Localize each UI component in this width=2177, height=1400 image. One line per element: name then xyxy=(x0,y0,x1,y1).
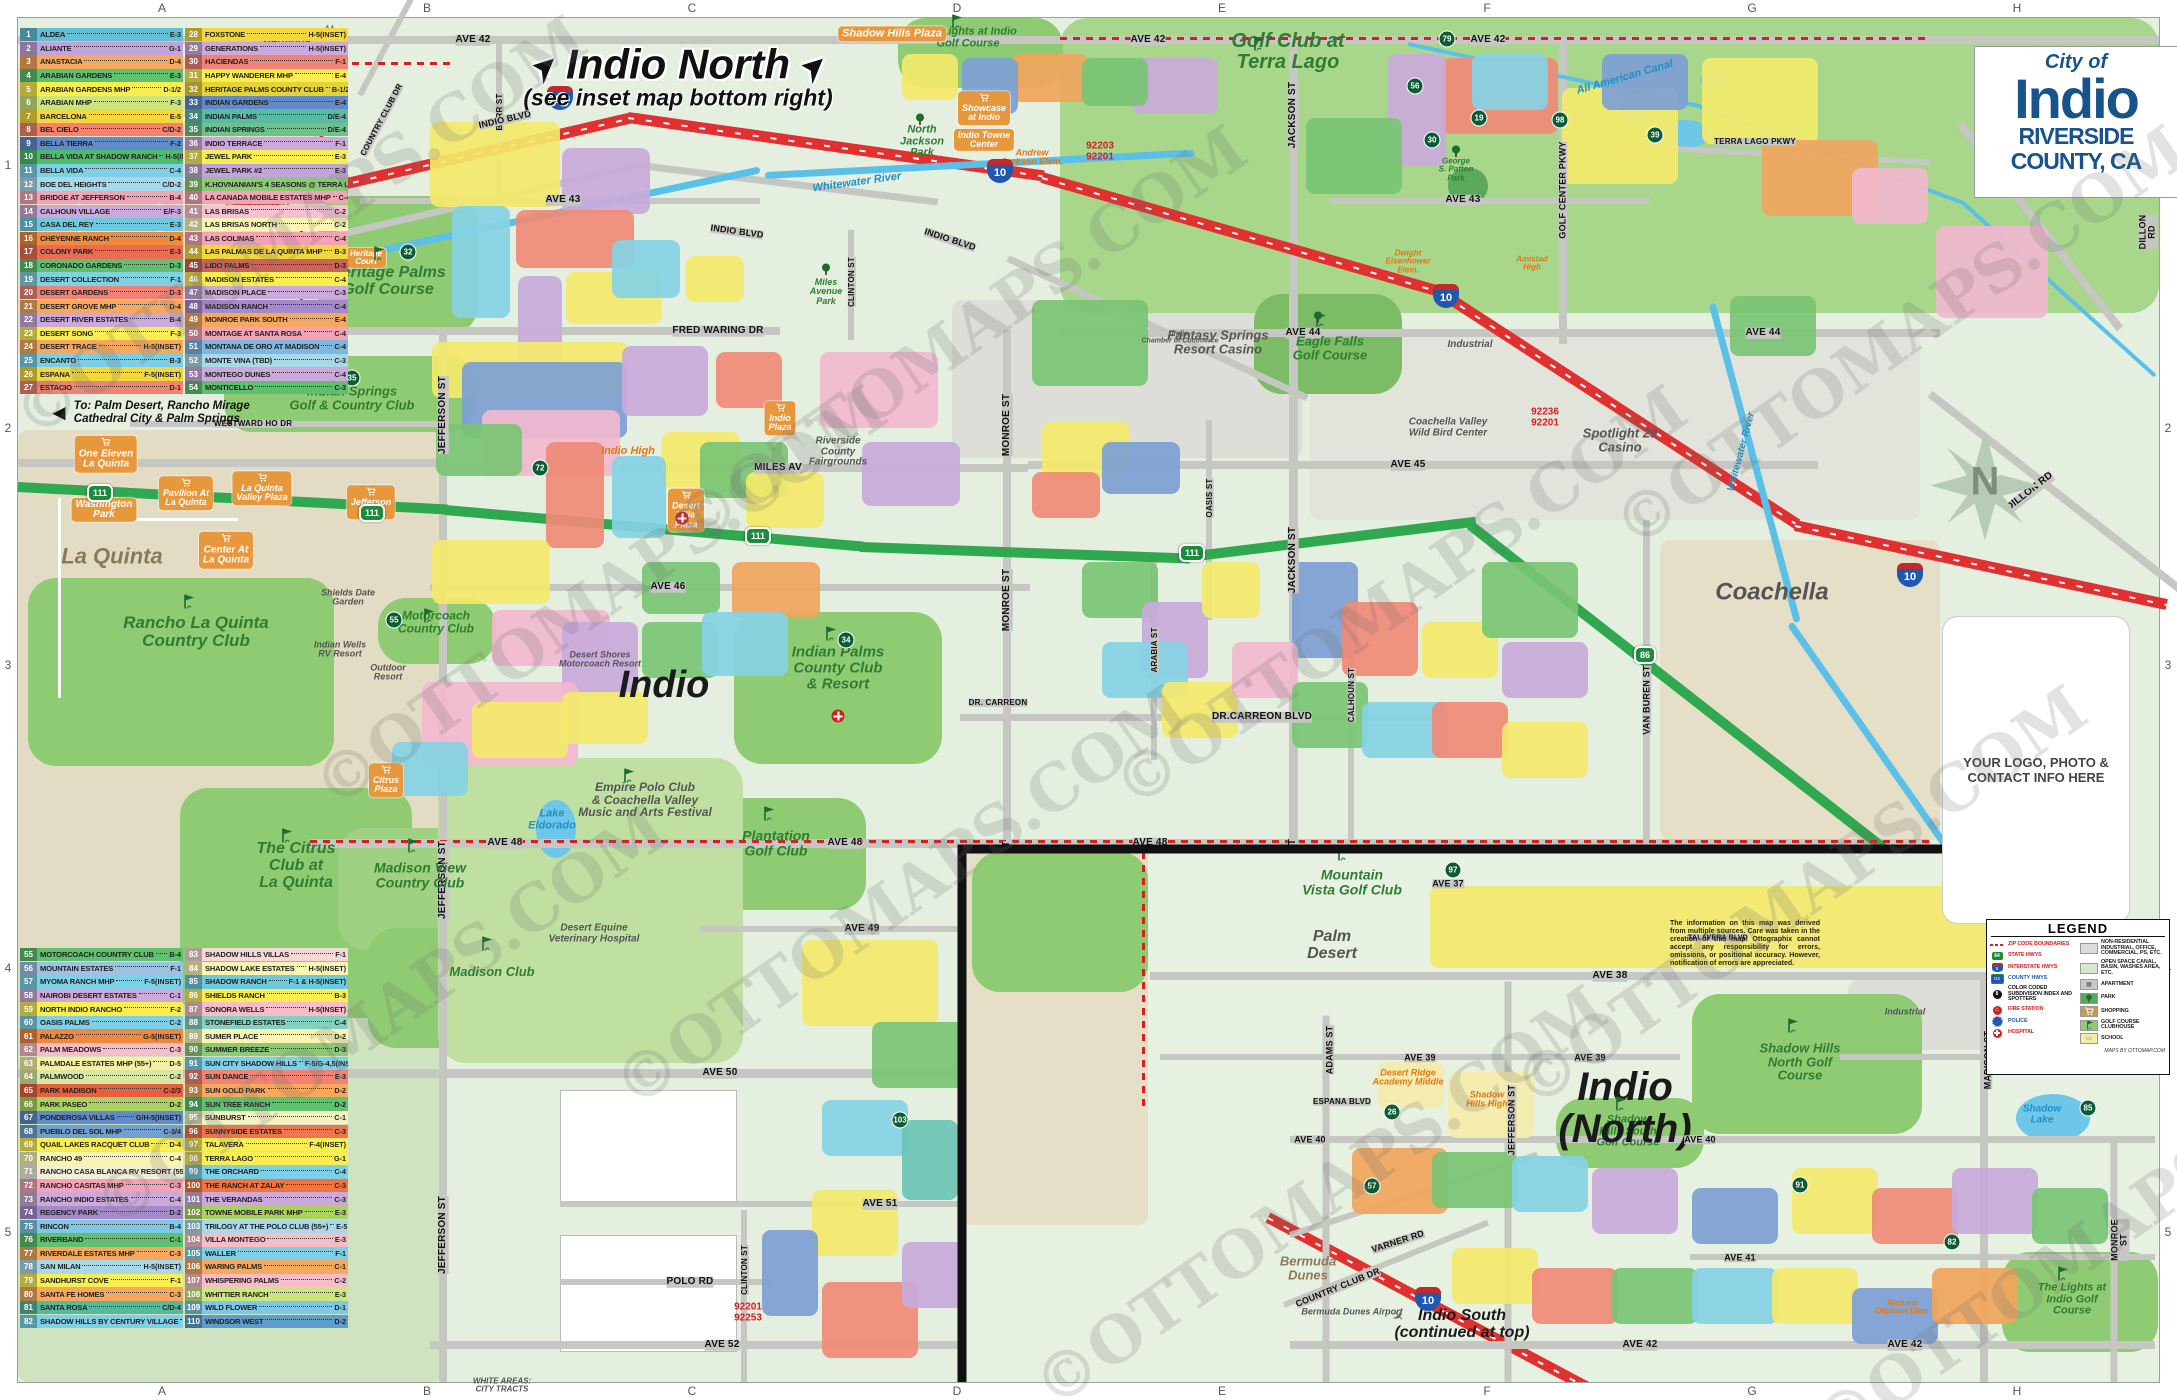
index-row-gridref: F-5(INSET) xyxy=(144,977,183,986)
index-row-gridref: E-3 xyxy=(170,247,183,256)
index-row-number: 12 xyxy=(20,177,37,190)
index-row: 21DESERT GROVE MHPD-4 xyxy=(20,300,183,313)
map-label: Shadow Hills High xyxy=(1466,1091,1508,1110)
index-row-gridref: B-4 xyxy=(169,950,183,959)
map-label: AVE 48 xyxy=(828,838,863,849)
subdivision-patch xyxy=(1502,722,1588,778)
index-row: 59NORTH INDIO RANCHOF-2 xyxy=(20,1002,183,1015)
index-row: 14CALHOUN VILLAGEE/F-3 xyxy=(20,205,183,218)
subdivision-patch xyxy=(1202,562,1260,618)
subdivision-patch xyxy=(1082,58,1148,106)
map-label: JACKSON ST xyxy=(1288,82,1299,148)
index-row-number: 15 xyxy=(20,218,37,231)
index-row-leader xyxy=(269,980,287,981)
road-band xyxy=(2111,1140,2118,1396)
map-label: JEFFERSON ST xyxy=(1507,1085,1516,1155)
subdivision-spotter-badge: 82 xyxy=(1944,1234,1961,1251)
index-row-name: K.HOVNANIAN'S 4 SEASONS @ TERRA LAGO (55… xyxy=(202,180,348,189)
index-row: 86SHIELDS RANCHB-3 xyxy=(185,989,348,1002)
state-hwy-shield: 86 xyxy=(1634,646,1656,664)
index-row-gridref: H-5(INSET) xyxy=(165,152,183,161)
legend-item-swatch xyxy=(2080,1006,2098,1017)
index-row-number: 85 xyxy=(185,975,202,988)
map-label: POLO RD xyxy=(667,1277,714,1288)
map-label: DR.CARREON BLVD xyxy=(1212,712,1312,723)
index-row-gridref: C-2 xyxy=(169,1072,183,1081)
index-row-leader xyxy=(276,277,333,278)
shield-number: 10 xyxy=(1433,290,1459,308)
road-band xyxy=(1290,1341,2155,1349)
index-row: 5ARABIAN GARDENS MHPD-1/2 xyxy=(20,82,183,95)
index-row-number: 28 xyxy=(185,28,202,41)
hospital-icon xyxy=(832,710,845,723)
index-row-number: 23 xyxy=(20,327,37,340)
index-row-number: 60 xyxy=(20,1016,37,1029)
index-row-gridref: C-3 xyxy=(169,1045,183,1054)
legend-item: 5INTERSTATE HWYS xyxy=(1989,963,2076,972)
index-row: 92SUN DANCEE-3 xyxy=(185,1070,348,1083)
golf-flag-icon xyxy=(949,14,963,35)
minor-street xyxy=(560,1090,737,1207)
index-row-name: RANCHO INDIO ESTATES xyxy=(37,1195,129,1204)
index-row: 78SAN MILANH-5(INSET) xyxy=(20,1260,183,1273)
zip-boundary-dash xyxy=(1142,852,1145,1108)
index-row-name: STONEFIELD ESTATES xyxy=(202,1018,285,1027)
index-row: 63PALMDALE ESTATES MHP (55+)D-5 xyxy=(20,1057,183,1070)
map-label: AVE 49 xyxy=(845,924,880,935)
legend-item-icon: 8 xyxy=(1989,990,2005,999)
index-row-name: BELLA VIDA xyxy=(37,166,83,175)
index-row: 3ANASTACIAD-4 xyxy=(20,55,183,68)
index-row: 103TRILOGY AT THE POLO CLUB (55+)E-5 xyxy=(185,1220,348,1233)
interstate-10-shield: 10 xyxy=(987,159,1013,183)
map-label: ADAMS ST xyxy=(1325,1026,1334,1075)
index-row: 82SHADOW HILLS BY CENTURY VILLAGEH-5(INS… xyxy=(20,1315,183,1328)
legend-item: ZIP CODE BOUNDARIES xyxy=(1989,940,2076,949)
index-row-name: SHADOW HILLS BY CENTURY VILLAGE xyxy=(37,1317,178,1326)
index-row-leader xyxy=(151,1143,167,1144)
index-row-leader xyxy=(267,993,333,994)
index-row-number: 39 xyxy=(185,177,202,190)
index-row-leader xyxy=(267,128,326,129)
index-row-gridref: C-3/4 xyxy=(163,1127,183,1136)
index-row: 69QUAIL LAKES RACQUET CLUBD-4 xyxy=(20,1138,183,1151)
index-row-name: BELLA TIERRA xyxy=(37,139,93,148)
index-row-number: 70 xyxy=(20,1152,37,1165)
grid-letter: G xyxy=(1747,1384,1756,1398)
title-city-name: Indio xyxy=(1975,74,2177,124)
index-row-name: TOWNE MOBILE PARK MHP xyxy=(202,1208,303,1217)
index-row: 49MONROE PARK SOUTHE-4 xyxy=(185,313,348,326)
index-row-leader xyxy=(92,1021,168,1022)
index-row-leader xyxy=(84,60,167,61)
offmap-destinations-text: To: Palm Desert, Rancho Mirage Cathedral… xyxy=(74,400,250,425)
minor-street xyxy=(560,1235,737,1352)
index-row-name: ENCANTO xyxy=(37,356,76,365)
index-row-leader xyxy=(86,1075,168,1076)
subdivision-spotter-badge: 26 xyxy=(1384,1104,1401,1121)
grid-number: 3 xyxy=(2165,658,2172,672)
subdivision-spotter-badge: 103 xyxy=(892,1112,909,1129)
index-row: 13BRIDGE AT JEFFERSONB-4 xyxy=(20,191,183,204)
index-row: 72RANCHO CASITAS MHPC-3 xyxy=(20,1179,183,1192)
index-row-gridref: E-3 xyxy=(335,1208,348,1217)
index-row-leader xyxy=(85,1238,167,1239)
index-row-gridref: D-4 xyxy=(169,234,183,243)
index-row-gridref: H-5(INSET) xyxy=(308,1005,348,1014)
index-row-number: 80 xyxy=(20,1287,37,1300)
index-row: 10BELLA VIDA AT SHADOW RANCHH-5(INSET) xyxy=(20,150,183,163)
map-label: Desert Equine Veterinary Hospital xyxy=(549,924,640,945)
index-row-name: CORONADO GARDENS xyxy=(37,261,122,270)
index-row: 34INDIAN PALMSD/E-4 xyxy=(185,109,348,122)
map-label: Empire Polo Club & Coachella Valley Musi… xyxy=(578,781,712,819)
index-row-number: 20 xyxy=(20,286,37,299)
subdivision-patch xyxy=(1936,226,2048,318)
index-row-number: 32 xyxy=(185,82,202,95)
index-row-number: 46 xyxy=(185,272,202,285)
index-row-leader xyxy=(251,209,332,210)
index-row-number: 68 xyxy=(20,1125,37,1138)
index-row-leader xyxy=(272,372,332,373)
index-row-number: 30 xyxy=(185,55,202,68)
index-row-leader xyxy=(85,168,167,169)
index-row-gridref: D-3 xyxy=(334,261,348,270)
legend-item-swatch xyxy=(2080,993,2098,1004)
road-band xyxy=(1690,1254,2155,1260)
grid-number: 3 xyxy=(5,658,12,672)
index-row-leader xyxy=(95,141,168,142)
index-row-gridref: D-1/2 xyxy=(163,85,183,94)
map-label: Miles Avenue Park xyxy=(810,278,843,306)
index-row-leader xyxy=(116,980,142,981)
index-row-leader xyxy=(271,1048,332,1049)
golf-flag-icon xyxy=(621,768,635,789)
legend-item-label: COLOR CODED SUBDIVISION INDEX AND SPOTTE… xyxy=(2008,986,2076,1003)
legend-item-label: PARK xyxy=(2101,995,2115,1001)
index-row-name: DESERT TRACE xyxy=(37,342,97,351)
index-row-number: 54 xyxy=(185,381,202,394)
map-label: VAN BUREN ST xyxy=(1642,665,1651,734)
index-row-leader xyxy=(264,168,333,169)
interstate-10-shield: 10 xyxy=(1415,1287,1441,1311)
map-label: AVE 38 xyxy=(1593,971,1628,982)
index-row-number: 74 xyxy=(20,1206,37,1219)
index-row-gridref: D-4 xyxy=(169,302,183,311)
index-row: 37JEWEL PARKE-3 xyxy=(185,150,348,163)
map-label: AVE 44 xyxy=(1746,328,1781,339)
index-row: 94SUN TREE RANCHD-2 xyxy=(185,1097,348,1110)
index-row-gridref: B-4 xyxy=(169,1222,183,1231)
subdivision-patch xyxy=(1702,58,1818,144)
grid-letter: A xyxy=(158,1,166,15)
index-row-leader xyxy=(286,1184,332,1185)
index-row-leader xyxy=(260,1034,332,1035)
legend-item-label: GOLF COURSE CLUBHOUSE xyxy=(2101,1020,2167,1031)
index-row: 53MONTEGO DUNESC-4 xyxy=(185,367,348,380)
index-row-gridref: F-1 xyxy=(170,275,183,284)
index-row: 27ESTACIOD-1 xyxy=(20,381,183,394)
index-row-name: JEWEL PARK xyxy=(202,152,252,161)
index-row-number: 11 xyxy=(20,164,37,177)
index-row-gridref: H-5(INSET) xyxy=(308,44,348,53)
subdivision-patch xyxy=(1342,602,1418,676)
index-row-leader xyxy=(297,966,307,967)
index-row: 22DESERT RIVER ESTATESB-4 xyxy=(20,313,183,326)
index-row: 61PALAZZOG-5(INSET) xyxy=(20,1029,183,1042)
index-row-number: 108 xyxy=(185,1287,202,1300)
index-row-name: PALMWOOD xyxy=(37,1072,84,1081)
map-label: Bermuda Dunes Airport xyxy=(1301,1307,1402,1316)
index-row-name: LAS BRISAS xyxy=(202,207,249,216)
map-label: AVE 45 xyxy=(1391,460,1426,471)
map-label: La Quinta xyxy=(61,544,162,567)
index-row-gridref: C/D-4 xyxy=(162,1303,183,1312)
index-row-number: 82 xyxy=(20,1315,37,1328)
index-row-name: LAS BRISAS NORTH xyxy=(202,220,277,229)
index-row-leader xyxy=(96,223,168,224)
index-row-number: 56 xyxy=(20,962,37,975)
index-row-number: 13 xyxy=(20,191,37,204)
index-row: 65PARK MADISONC-2/3 xyxy=(20,1084,183,1097)
index-row: 79SANDHURST COVEF-1 xyxy=(20,1274,183,1287)
index-row-name: INDIAN GARDENS xyxy=(202,98,268,107)
index-row-name: MONROE PARK SOUTH xyxy=(202,315,288,324)
index-row-name: THE ORCHARD xyxy=(202,1167,259,1176)
index-row: 74REGENCY PARKD-2 xyxy=(20,1206,183,1219)
map-label: Industrial xyxy=(1447,340,1492,351)
index-row-number: 18 xyxy=(20,259,37,272)
subdivision-patch xyxy=(622,346,708,416)
index-row-gridref: C-3 xyxy=(334,356,348,365)
index-row-gridref: B-3 xyxy=(334,247,348,256)
golf-flag-icon xyxy=(1313,312,1327,333)
index-row: 43LAS COLINASC-4 xyxy=(185,232,348,245)
legend-item: HOSPITAL xyxy=(1989,1029,2076,1038)
index-row-gridref: E-5 xyxy=(170,112,183,121)
index-row: 9BELLA TIERRAF-2 xyxy=(20,137,183,150)
index-row-leader xyxy=(326,87,330,88)
index-row: 15CASA DEL REYE-3 xyxy=(20,218,183,231)
index-row-leader xyxy=(261,1170,332,1171)
index-row-name: WHISPERING PALMS xyxy=(202,1276,279,1285)
index-row-number: 93 xyxy=(185,1084,202,1097)
index-row-gridref: C/D-2 xyxy=(162,180,183,189)
index-row-gridref: C-3 xyxy=(334,1127,348,1136)
index-row-number: 90 xyxy=(185,1043,202,1056)
subdivision-patch xyxy=(612,456,666,538)
golf-flag-icon xyxy=(181,594,195,615)
subdivision-spotter-badge: 85 xyxy=(2080,1100,2097,1117)
legend-left-column: ZIP CODE BOUNDARIES64STATE HWYS5INTERSTA… xyxy=(1987,939,2078,1048)
index-row-gridref: F-4(INSET) xyxy=(309,1140,348,1149)
legend-item-label: ZIP CODE BOUNDARIES xyxy=(2008,942,2069,948)
index-row-leader xyxy=(106,1292,167,1293)
legend-item-icon xyxy=(1989,1017,2005,1026)
subdivision-patch xyxy=(1472,54,1548,110)
index-row-name: INDIAN SPRINGS xyxy=(202,125,265,134)
index-row-gridref: D-2 xyxy=(334,1100,348,1109)
map-label: ARABIA ST xyxy=(1151,627,1159,672)
index-row-name: DESERT SONG xyxy=(37,329,93,338)
index-row-leader xyxy=(72,372,142,373)
map-label: AVE 48 xyxy=(488,838,523,849)
map-title-north: ➤Indio North➤ (see inset map bottom righ… xyxy=(521,41,835,112)
index-row-gridref: C-2 xyxy=(334,1276,348,1285)
index-row-gridref: B-1/2,C-2 xyxy=(332,85,348,94)
subdivision-patch xyxy=(1692,1268,1778,1324)
index-row-number: 110 xyxy=(185,1315,202,1328)
map-label: 92201 92253 xyxy=(734,1303,762,1324)
map-label: Coachella Valley Wild Bird Center xyxy=(1409,418,1488,439)
index-row-name: HACIENDAS xyxy=(202,57,248,66)
index-row-gridref: F-1 xyxy=(335,57,348,66)
index-row-gridref: E-3 xyxy=(335,152,348,161)
legend-item-swatch: ▦ xyxy=(2080,979,2098,990)
legend-item-label: OPEN SPACE CANAL, BASIN, WASHES AREA, ET… xyxy=(2101,960,2167,977)
index-row-gridref: F-1 xyxy=(335,1249,348,1258)
index-row-number: 81 xyxy=(20,1301,37,1314)
index-row-leader xyxy=(132,87,161,88)
index-row-leader xyxy=(266,1007,306,1008)
index-row-name: MYOMA RANCH MHP xyxy=(37,977,114,986)
index-row-number: 58 xyxy=(20,989,37,1002)
map-label: AVE 43 xyxy=(546,195,581,206)
subdivision-spotter-badge: 30 xyxy=(1424,132,1441,149)
index-row-name: SANDHURST COVE xyxy=(37,1276,109,1285)
index-row-gridref: D/E-4 xyxy=(328,125,348,134)
grid-number: 2 xyxy=(5,421,12,435)
index-row-name: DESERT COLLECTION xyxy=(37,275,119,284)
state-hwy-shield: 111 xyxy=(745,527,771,545)
legend-item-label: FIRE STATION xyxy=(2008,1007,2043,1013)
legend-item-label: POLICE xyxy=(2008,1019,2027,1025)
index-row: 26ESPANAF-5(INSET) xyxy=(20,367,183,380)
legend-item-icon xyxy=(1989,1029,2005,1038)
map-label: Shields Date Garden xyxy=(321,589,375,608)
map-label: Shadow Lake xyxy=(2023,1105,2061,1126)
map-label: FRED WARING DR xyxy=(672,326,763,337)
index-row-number: 25 xyxy=(20,354,37,367)
index-row-leader xyxy=(259,1306,332,1307)
map-canvas: Mountain Vista Golf ClubShadow Hills Nor… xyxy=(18,18,2159,1382)
index-row-name: ALDEA xyxy=(37,30,65,39)
index-row-gridref: C-4 xyxy=(169,166,183,175)
map-label: Plantation Golf Club xyxy=(742,828,810,857)
index-row: 89SUMER PLACED-2 xyxy=(185,1029,348,1042)
shield-number: 10 xyxy=(1897,569,1923,587)
subdivision-patch xyxy=(472,702,568,758)
subdivision-patch xyxy=(452,206,510,318)
index-row-number: 49 xyxy=(185,313,202,326)
subdivision-patch xyxy=(1012,54,1088,102)
index-row: 60OASIS PALMSC-2 xyxy=(20,1016,183,1029)
map-label: Golf Club at Terra Lago xyxy=(1231,31,1344,73)
compass-rose: N xyxy=(1930,431,2040,546)
map-label: AVE 40 xyxy=(1684,1135,1716,1144)
index-row-leader xyxy=(84,1156,167,1157)
subdivision-spotter-badge: 55 xyxy=(386,612,403,629)
index-row-number: 83 xyxy=(185,948,202,961)
inset-reference-note: (see inset map bottom right) xyxy=(521,85,835,112)
index-row-gridref: H-5(INSET) xyxy=(308,964,348,973)
index-row: 28FOXSTONEH-5(INSET) xyxy=(185,28,348,41)
index-row-number: 73 xyxy=(20,1192,37,1205)
index-row-leader xyxy=(89,1306,160,1307)
index-row-leader xyxy=(111,1279,169,1280)
index-row-leader xyxy=(95,331,168,332)
grid-letter: B xyxy=(423,1384,431,1398)
index-row-name: CHEYENNE RANCH xyxy=(37,234,109,243)
index-row-number: 35 xyxy=(185,123,202,136)
index-row-number: 40 xyxy=(185,191,202,204)
index-column: 83SHADOW HILLS VILLASF-184SHADOW LAKE ES… xyxy=(185,948,348,1328)
golf-flag-icon xyxy=(479,936,493,957)
index-row-gridref: H-5(INSET) xyxy=(308,30,348,39)
index-row-gridref: F-3 xyxy=(170,98,183,107)
state-hwy-band xyxy=(1187,517,1476,562)
index-row-number: 31 xyxy=(185,69,202,82)
index-row-gridref: E-4 xyxy=(335,315,348,324)
index-row-number: 96 xyxy=(185,1125,202,1138)
index-row-leader xyxy=(67,33,168,34)
index-row-name: CALHOUN VILLAGE xyxy=(37,207,110,216)
index-row-gridref: D-4 xyxy=(169,57,183,66)
minor-street xyxy=(58,498,61,698)
index-row-leader xyxy=(121,277,168,278)
subdivision-patch xyxy=(686,256,744,302)
shopping-center-label: Indio Plaza xyxy=(764,401,795,435)
index-row: 39K.HOVNANIAN'S 4 SEASONS @ TERRA LAGO (… xyxy=(185,177,348,190)
index-row-leader xyxy=(71,1224,168,1225)
index-row-number: 24 xyxy=(20,340,37,353)
index-row-number: 44 xyxy=(185,245,202,258)
index-row-name: PUEBLO DEL SOL MHP xyxy=(37,1127,122,1136)
index-row-leader xyxy=(238,1251,333,1252)
index-row: 35INDIAN SPRINGSD/E-4 xyxy=(185,123,348,136)
index-row: 80SANTA FE HOMESC-3 xyxy=(20,1287,183,1300)
index-row-name: SUMER PLACE xyxy=(202,1032,258,1041)
index-row-leader xyxy=(270,1292,332,1293)
index-row-number: 72 xyxy=(20,1179,37,1192)
subdivision-spotter-badge: 97 xyxy=(1445,862,1462,879)
shopping-center-label: Citrus Plaza xyxy=(369,763,403,797)
index-row-number: 34 xyxy=(185,109,202,122)
index-row-gridref: C-4 xyxy=(339,193,348,202)
index-row-name: MOUNTAIN ESTATES xyxy=(37,964,113,973)
index-row: 55MOTORCOACH COUNTRY CLUBB-4 xyxy=(20,948,183,961)
index-row-leader xyxy=(250,1075,332,1076)
map-label: Outdoor Resort xyxy=(370,664,406,683)
index-row: 95SUNBURSTC-1 xyxy=(185,1111,348,1124)
map-label: OASIS ST xyxy=(1206,479,1214,518)
index-row-gridref: E-3 xyxy=(335,1235,348,1244)
index-row-name: NORTH INDIO RANCHO xyxy=(37,1005,122,1014)
index-row-gridref: F-5(INSET) xyxy=(144,370,183,379)
index-row-leader xyxy=(81,128,161,129)
index-row-gridref: C-2 xyxy=(334,220,348,229)
grid-letter: F xyxy=(1483,1,1490,15)
index-row-leader xyxy=(264,1265,332,1266)
map-label: AVE 42 xyxy=(1131,35,1166,46)
index-row-name: MONTEGO DUNES xyxy=(202,370,270,379)
map-label: JACKSON ST xyxy=(1288,527,1299,593)
index-row-gridref: C-1 xyxy=(169,1235,183,1244)
index-row-leader xyxy=(264,141,333,142)
index-row: 44LAS PALMAS DE LA QUINTA MHPB-3 xyxy=(185,245,348,258)
index-row: 56MOUNTAIN ESTATESF-1 xyxy=(20,962,183,975)
index-row-gridref: D-3 xyxy=(334,1045,348,1054)
